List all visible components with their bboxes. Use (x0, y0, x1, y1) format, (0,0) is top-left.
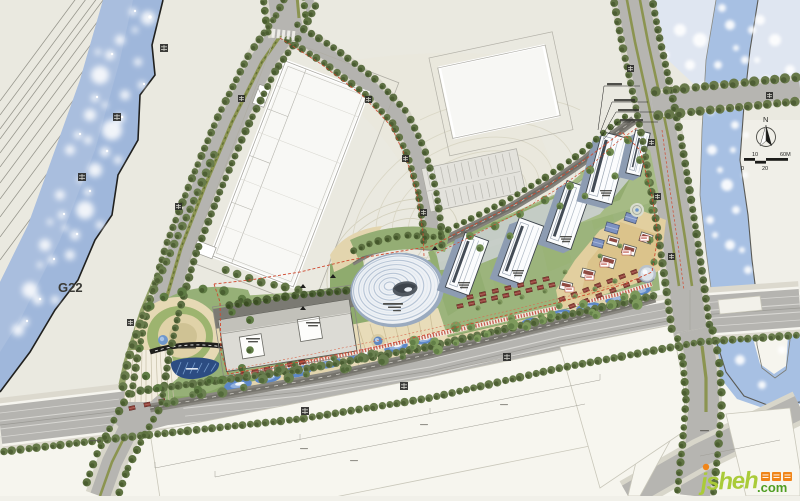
svg-text:20: 20 (762, 166, 768, 172)
svg-text:10: 10 (752, 152, 758, 158)
svg-text:N: N (763, 115, 768, 124)
svg-text:60M: 60M (780, 152, 791, 158)
svg-text:G22: G22 (58, 280, 83, 295)
svg-text:.com: .com (757, 480, 787, 495)
svg-text:jsheh: jsheh (697, 467, 758, 496)
svg-text:0: 0 (741, 166, 744, 172)
